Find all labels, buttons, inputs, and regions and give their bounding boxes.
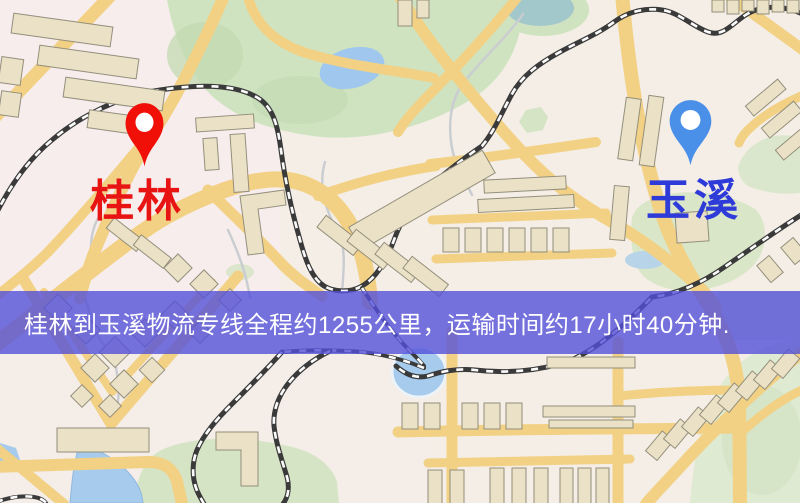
map-background bbox=[0, 0, 800, 503]
destination-city-label: 玉溪 bbox=[646, 179, 742, 223]
route-map-image: 桂林 玉溪 桂林到玉溪物流专线全程约1255公里，运输时间约17小时40分钟. bbox=[0, 0, 800, 503]
origin-city-label: 桂林 bbox=[90, 180, 184, 224]
blue-map-pin-icon bbox=[668, 99, 713, 167]
route-info-text: 桂林到玉溪物流专线全程约1255公里，运输时间约17小时40分钟. bbox=[24, 305, 730, 340]
route-info-banner: 桂林到玉溪物流专线全程约1255公里，运输时间约17小时40分钟. bbox=[0, 291, 800, 354]
destination-pin[interactable] bbox=[668, 99, 713, 172]
red-map-pin-icon bbox=[124, 102, 165, 168]
origin-pin[interactable] bbox=[124, 102, 165, 173]
